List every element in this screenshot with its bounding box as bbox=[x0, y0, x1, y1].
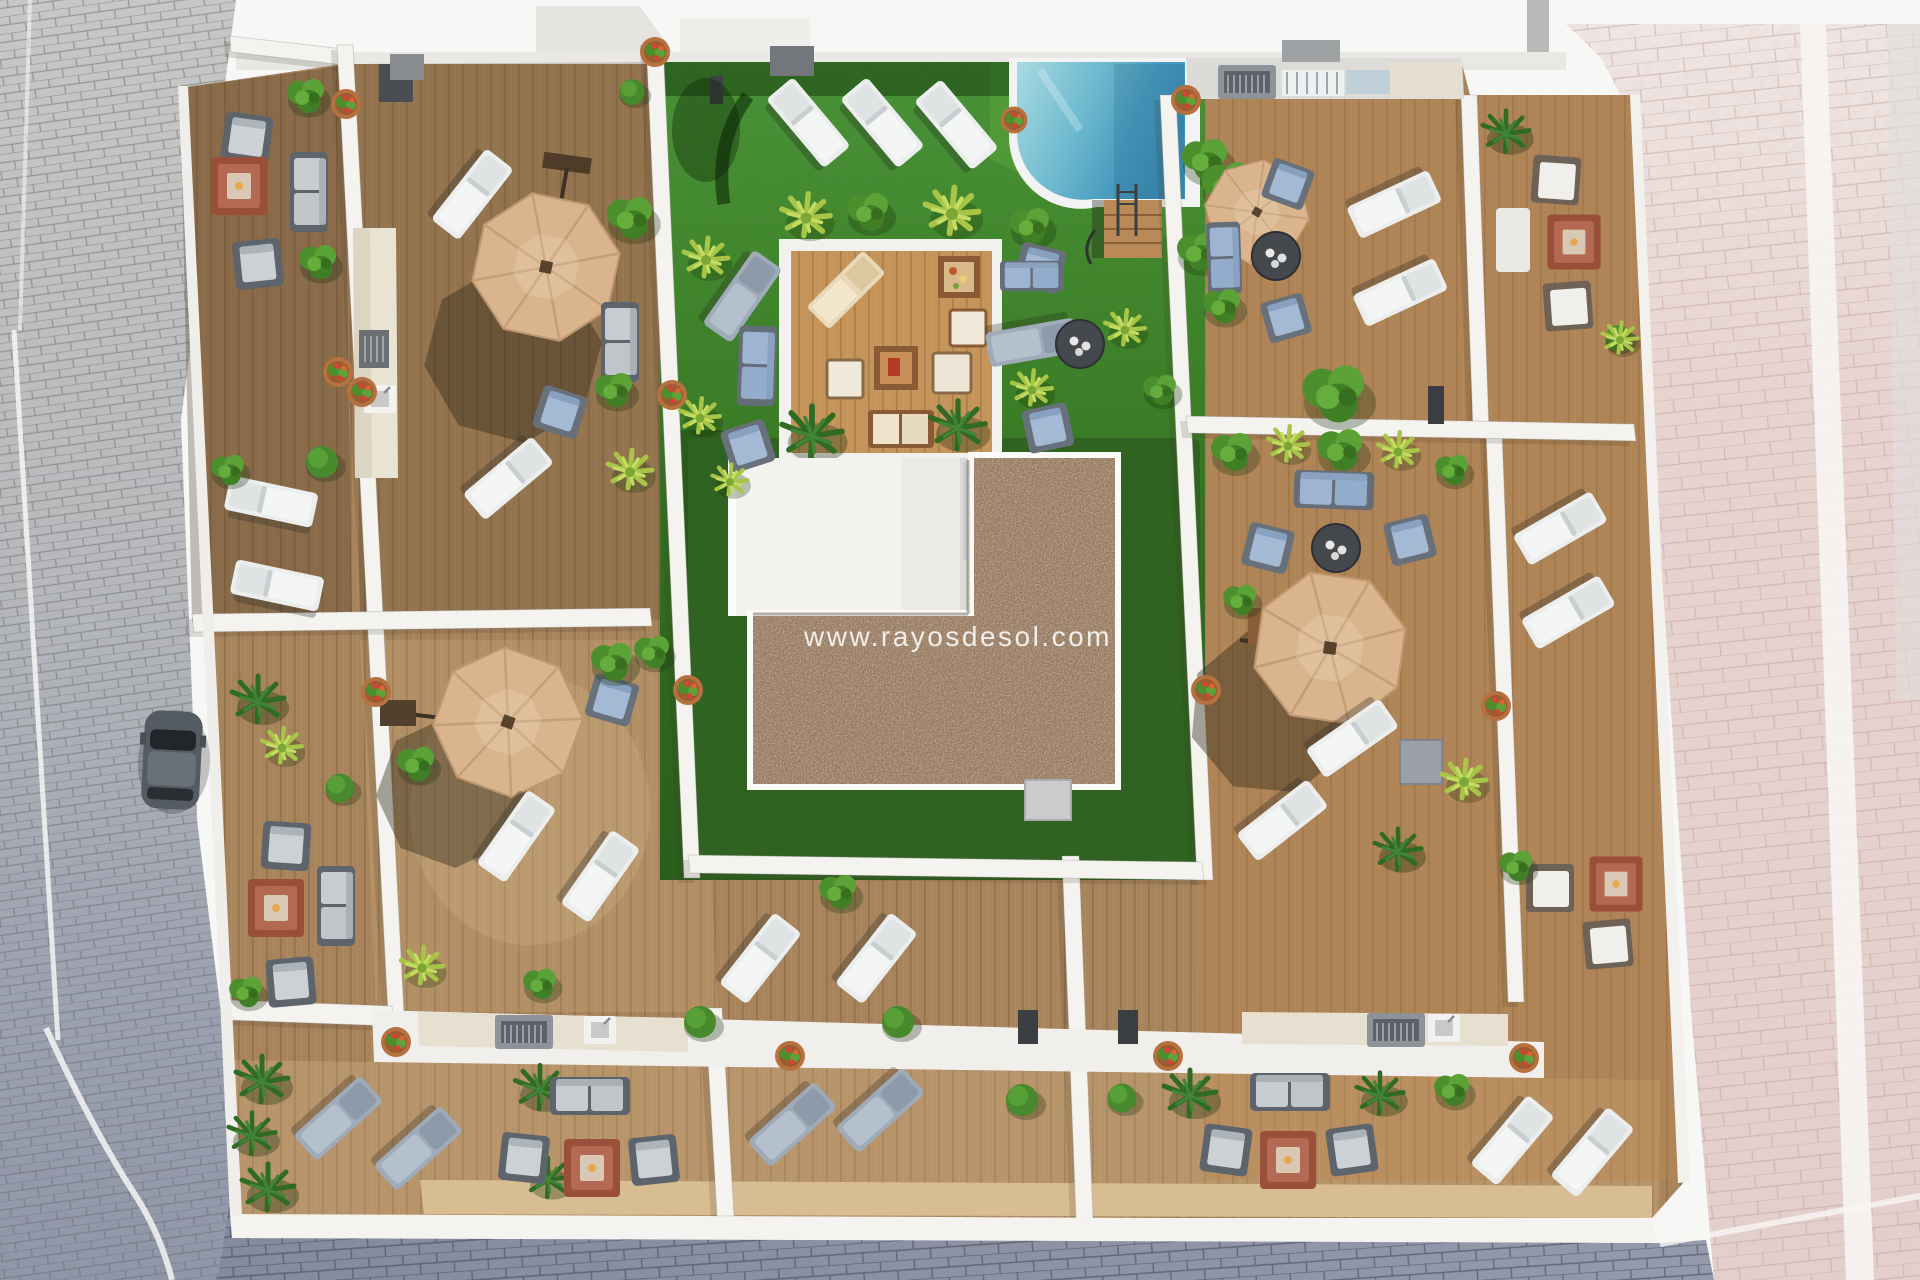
svg-text:www.rayosdesol.com: www.rayosdesol.com bbox=[803, 621, 1112, 652]
